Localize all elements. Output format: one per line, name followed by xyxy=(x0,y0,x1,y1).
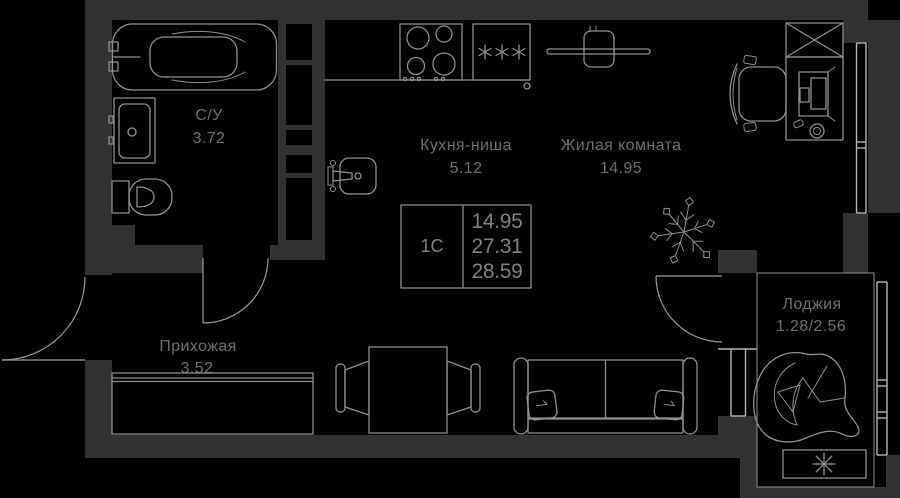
vent-shafts xyxy=(286,24,312,240)
label-kitchen-area: 5.12 xyxy=(450,160,483,177)
sofa-pillow xyxy=(654,390,685,421)
hallway-wardrobe-icon xyxy=(112,373,313,434)
label-hallway-name: Прихожая xyxy=(159,338,236,355)
label-bathroom-name: С/У xyxy=(195,107,223,124)
window-loggia-icon xyxy=(877,282,887,455)
dining-chair-right-icon xyxy=(447,361,480,415)
tv-icon xyxy=(547,26,650,67)
sofa-pillow xyxy=(526,389,557,420)
area-value-2: 27.31 xyxy=(471,235,522,258)
mug-icon xyxy=(793,119,824,138)
plant-icon xyxy=(649,196,716,265)
label-loggia-area: 1.28/2.56 xyxy=(776,318,846,335)
bathroom-sink-icon xyxy=(109,98,155,163)
office-chair-icon xyxy=(730,55,786,132)
bathtub-icon xyxy=(109,24,277,90)
label-living-area: 14.95 xyxy=(600,160,642,177)
label-loggia-name: Лоджия xyxy=(782,296,841,313)
entrance-door-icon xyxy=(2,277,85,360)
floor-plan-svg: 1С 14.95 27.31 28.59 С/У 3.72 Кухня-ниша… xyxy=(0,0,900,498)
balcony-door-icon xyxy=(656,276,722,342)
ac-unit-icon xyxy=(783,450,866,478)
label-living-name: Жилая комната xyxy=(561,137,682,154)
stove-icon xyxy=(400,24,462,81)
area-value-3: 28.59 xyxy=(471,260,522,283)
label-kitchen-name: Кухня-ниша xyxy=(420,137,512,154)
area-value-1: 14.95 xyxy=(471,210,522,233)
floor-plan: 1С 14.95 27.31 28.59 С/У 3.72 Кухня-ниша… xyxy=(0,0,900,498)
frost-symbol xyxy=(479,45,525,59)
sofa-icon xyxy=(514,358,697,434)
bathroom-door-icon xyxy=(203,258,268,323)
monitor-icon xyxy=(799,67,835,121)
label-bathroom-area: 3.72 xyxy=(193,130,226,147)
hanging-chair-icon xyxy=(754,353,859,442)
fridge-icon xyxy=(473,24,530,89)
window-divider-icon xyxy=(718,349,757,416)
dining-chair-left-icon xyxy=(336,361,369,415)
closet-icon xyxy=(786,23,843,57)
desk-icon xyxy=(786,57,843,140)
unit-label: 1С xyxy=(420,236,443,256)
info-box: 1С 14.95 27.31 28.59 xyxy=(401,205,531,288)
label-hallway-area: 3.52 xyxy=(181,360,214,377)
dining-table-icon xyxy=(369,347,447,433)
kitchen-sink-icon xyxy=(328,158,376,194)
window-living-icon xyxy=(857,43,867,213)
toilet-icon xyxy=(112,179,172,215)
